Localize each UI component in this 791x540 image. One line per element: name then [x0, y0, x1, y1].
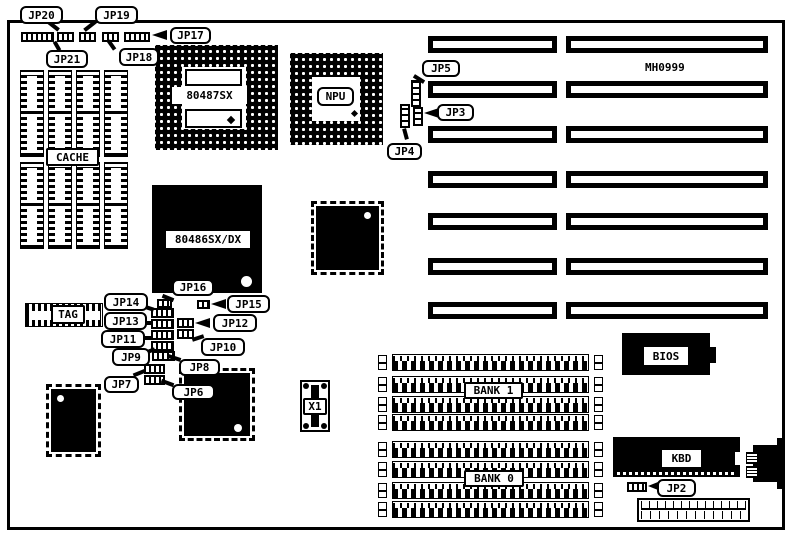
simm-socket-5	[378, 441, 603, 458]
keyboard-din-connector-edge	[777, 438, 785, 489]
callout-jp5: JP5	[422, 60, 460, 77]
bios-chip-tab	[710, 347, 716, 363]
callout-jp17: JP17	[170, 27, 211, 44]
jumper-jp14	[151, 308, 174, 318]
callout-tail-jp17	[152, 30, 167, 40]
callout-jp3: JP3	[437, 104, 474, 121]
bios-label: BIOS	[644, 347, 688, 365]
callout-jp21: JP21	[46, 50, 88, 68]
pin1-dot	[234, 424, 242, 432]
callout-jp15: JP15	[227, 295, 270, 313]
simm-end	[594, 442, 603, 457]
callout-jp19: JP19	[95, 6, 138, 24]
cache-socket-2	[48, 70, 72, 157]
isa-slot-3-left	[428, 126, 557, 143]
simm-end	[594, 483, 603, 498]
isa-slot-1-right	[566, 36, 768, 53]
simm-socket-8	[378, 501, 603, 518]
callout-tail-jp15	[211, 299, 226, 309]
crystal-pad	[311, 385, 319, 398]
jumper-jp3	[413, 107, 423, 126]
power-connector	[637, 498, 750, 522]
pin1-dot	[57, 395, 64, 402]
crystal-label: X1	[303, 398, 327, 415]
isa-slot-2-left	[428, 81, 557, 98]
mount-hole	[303, 423, 309, 429]
simm-end	[378, 377, 387, 392]
pin1-dot	[241, 276, 252, 287]
cache-socket-5	[20, 162, 44, 249]
bank1-label: BANK 1	[464, 382, 523, 399]
jumper-jp15	[197, 300, 210, 309]
simm-socket-1	[378, 354, 603, 371]
cache-socket-1	[20, 70, 44, 157]
callout-jp7: JP7	[104, 376, 139, 393]
jumper-jp12	[177, 318, 194, 328]
cache-socket-6	[48, 162, 72, 249]
cpu-label: 80486SX/DX	[166, 231, 250, 248]
callout-jp11: JP11	[101, 330, 145, 348]
simm-end	[594, 377, 603, 392]
callout-jp2: JP2	[657, 479, 696, 497]
din-pin-header	[746, 466, 758, 478]
jumper-jp2	[627, 482, 647, 492]
simm-teeth	[392, 441, 589, 458]
jumper-jp20	[57, 32, 74, 42]
board-id-label: MH0999	[645, 61, 685, 74]
simm-end	[378, 442, 387, 457]
isa-slot-7-left	[428, 302, 557, 319]
simm-socket-4	[378, 414, 603, 431]
pin1-dot	[364, 212, 371, 219]
coprocessor-label: 80487SX	[172, 87, 247, 104]
isa-slot-2-right	[566, 81, 768, 98]
cache-socket-8	[104, 162, 128, 249]
jumper-jp5	[411, 80, 421, 107]
isa-slot-3-right	[566, 126, 768, 143]
cache-socket-4	[104, 70, 128, 157]
callout-jp4: JP4	[387, 143, 422, 160]
jumper-jp21	[21, 32, 54, 42]
jumper-jp7	[144, 364, 165, 374]
simm-end	[594, 462, 603, 477]
simm-end	[594, 502, 603, 517]
tag-label: TAG	[51, 305, 85, 324]
connector-pins-top	[641, 501, 746, 510]
jumper-jp4	[400, 104, 410, 128]
callout-jp8: JP8	[179, 359, 220, 376]
isa-slot-1-left	[428, 36, 557, 53]
simm-end	[378, 462, 387, 477]
kbd-label: KBD	[662, 450, 701, 467]
isa-slot-4-left	[428, 171, 557, 188]
isa-slot-6-right	[566, 258, 768, 275]
isa-slot-5-right	[566, 213, 768, 230]
callout-jp20: JP20	[20, 6, 63, 24]
isa-slot-4-right	[566, 171, 768, 188]
connector-pins-bottom	[641, 511, 746, 519]
npu-label: NPU	[317, 87, 354, 106]
simm-end	[594, 397, 603, 412]
isa-slot-6-left	[428, 258, 557, 275]
isa-slot-7-right	[566, 302, 768, 319]
din-pin-header	[746, 452, 758, 464]
pin-row	[617, 472, 736, 475]
callout-jp16: JP16	[172, 279, 214, 296]
simm-end	[378, 415, 387, 430]
callout-tail-jp12	[195, 318, 210, 328]
callout-jp14: JP14	[104, 293, 148, 311]
callout-jp12: JP12	[213, 314, 257, 332]
simm-end	[594, 415, 603, 430]
callout-jp6: JP6	[172, 384, 215, 400]
crystal-pad	[311, 414, 319, 427]
jumper-jp13	[151, 319, 174, 329]
simm-teeth	[392, 354, 589, 371]
simm-end	[378, 502, 387, 517]
callout-jp9: JP9	[112, 348, 150, 366]
cache-socket-3	[76, 70, 100, 157]
simm-end	[378, 355, 387, 370]
callout-jp10: JP10	[201, 338, 245, 356]
jumper-jp11	[151, 330, 174, 340]
mount-hole	[303, 383, 309, 389]
mount-hole	[321, 423, 327, 429]
simm-teeth	[392, 414, 589, 431]
simm-teeth	[392, 501, 589, 518]
isa-slot-5-left	[428, 213, 557, 230]
simm-end	[378, 483, 387, 498]
motherboard-diagram: JP20 JP19 JP17 JP21 JP18 CACHE 80487SX N…	[0, 0, 791, 540]
simm-end	[378, 397, 387, 412]
cache-socket-7	[76, 162, 100, 249]
jumper-jp19	[79, 32, 96, 42]
cache-label: CACHE	[46, 148, 99, 166]
bank0-label: BANK 0	[464, 470, 524, 487]
socket-slot	[185, 69, 242, 86]
jumper-jp17	[124, 32, 150, 42]
callout-jp18: JP18	[119, 48, 159, 66]
simm-end	[594, 355, 603, 370]
chip-notch	[735, 452, 740, 465]
callout-jp13: JP13	[104, 312, 147, 330]
mount-hole	[321, 383, 327, 389]
